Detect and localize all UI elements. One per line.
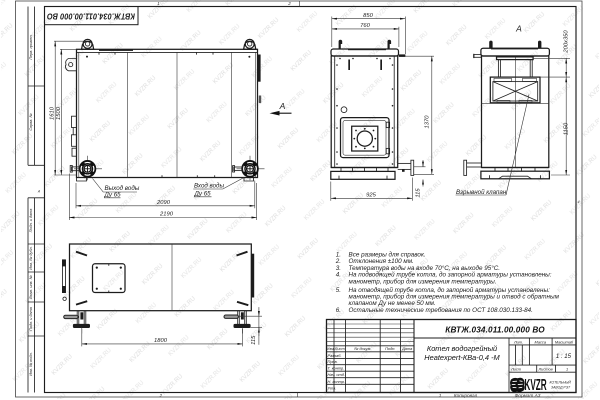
- svg-text:Остальные технические требован: Остальные технические требования по ОСТ …: [349, 306, 533, 314]
- svg-text:1370: 1370: [424, 115, 430, 129]
- svg-text:115: 115: [251, 335, 257, 345]
- svg-text:Перв. примен.: Перв. примен.: [29, 34, 33, 59]
- svg-text:2090: 2090: [156, 200, 171, 206]
- svg-text:6.: 6.: [336, 307, 341, 314]
- svg-text:Т. контр.: Т. контр.: [328, 366, 345, 371]
- svg-text:1 : 15: 1 : 15: [556, 354, 572, 360]
- svg-text:Пров.: Пров.: [328, 359, 338, 364]
- svg-text:На подводящей трубе котла, до: На подводящей трубе котла, до запорной а…: [349, 271, 552, 279]
- svg-text:Изм: Изм: [327, 346, 335, 351]
- svg-text:2: 2: [159, 393, 163, 398]
- svg-text:Нач. отд.: Нач. отд.: [328, 372, 345, 377]
- svg-text:4.: 4.: [336, 272, 341, 279]
- svg-text:1: 1: [439, 393, 442, 398]
- svg-text:КВТЖ.034.011.00.000 ВО: КВТЖ.034.011.00.000 ВО: [46, 11, 135, 20]
- svg-text:KVZR: KVZR: [524, 376, 546, 393]
- svg-text:Лист: Лист: [334, 346, 346, 351]
- svg-text:№ докум.: № докум.: [354, 346, 371, 351]
- svg-text:Н. контр.: Н. контр.: [328, 379, 346, 384]
- svg-text:1610: 1610: [50, 106, 56, 120]
- svg-text:Подп. и дата: Подп. и дата: [29, 307, 33, 331]
- svg-text:Лит.: Лит.: [513, 340, 523, 345]
- svg-text:Ду 65: Ду 65: [104, 191, 122, 198]
- svg-text:115: 115: [416, 188, 422, 198]
- svg-text:Копировал: Копировал: [454, 393, 478, 398]
- svg-text:Подп. и дата: Подп. и дата: [29, 209, 33, 233]
- svg-text:1: 1: [566, 367, 568, 372]
- svg-text:Формат А3: Формат А3: [515, 393, 541, 398]
- svg-text:Справ. №: Справ. №: [29, 113, 33, 130]
- svg-text:Температура воды на входе 70°С: Температура воды на входе 70°С, на выход…: [349, 264, 501, 272]
- svg-text:ЗАВОД РЭТ: ЗАВОД РЭТ: [551, 385, 571, 389]
- svg-text:Подп.: Подп.: [385, 346, 395, 351]
- svg-text:манометр, прибор для измерения: манометр, прибор для измерения температу…: [349, 277, 497, 285]
- svg-text:1500: 1500: [56, 106, 62, 120]
- svg-text:Листов: Листов: [538, 367, 553, 372]
- svg-text:А: А: [515, 24, 522, 34]
- svg-text:925: 925: [366, 193, 376, 199]
- svg-text:2190: 2190: [159, 212, 174, 218]
- svg-text:200х350: 200х350: [563, 30, 569, 54]
- svg-text:850: 850: [363, 13, 373, 19]
- svg-text:Инв. № дубл.: Инв. № дубл.: [29, 246, 33, 269]
- svg-text:Лист: Лист: [510, 367, 522, 372]
- svg-text:Вход воды: Вход воды: [194, 183, 224, 190]
- svg-text:Разраб.: Разраб.: [328, 353, 342, 358]
- svg-text:Взам. инв. №: Взам. инв. №: [29, 275, 33, 298]
- svg-text:Взрывной клапан: Взрывной клапан: [456, 189, 507, 196]
- svg-text:Дата: Дата: [401, 346, 413, 351]
- svg-text:Инв. № подл.: Инв. № подл.: [29, 352, 33, 376]
- svg-text:КВТЖ.034.011.00.000 ВО: КВТЖ.034.011.00.000 ВО: [445, 325, 545, 334]
- svg-text:1150: 1150: [563, 122, 569, 135]
- svg-text:1800: 1800: [154, 338, 168, 344]
- svg-text:760: 760: [360, 23, 370, 29]
- svg-text:А: А: [279, 101, 286, 111]
- svg-text:Утв.: Утв.: [328, 385, 337, 390]
- svg-text:2: 2: [287, 1, 291, 6]
- svg-text:Масса: Масса: [535, 340, 547, 345]
- svg-text:Heatexpert-КВа-0,4 -М: Heatexpert-КВа-0,4 -М: [424, 353, 500, 362]
- svg-text:Масштаб: Масштаб: [555, 340, 574, 345]
- svg-text:Котел водогрейный: Котел водогрейный: [427, 344, 497, 353]
- svg-text:КОТЕЛЬНЫЙ: КОТЕЛЬНЫЙ: [550, 380, 572, 384]
- svg-text:5.: 5.: [336, 287, 341, 294]
